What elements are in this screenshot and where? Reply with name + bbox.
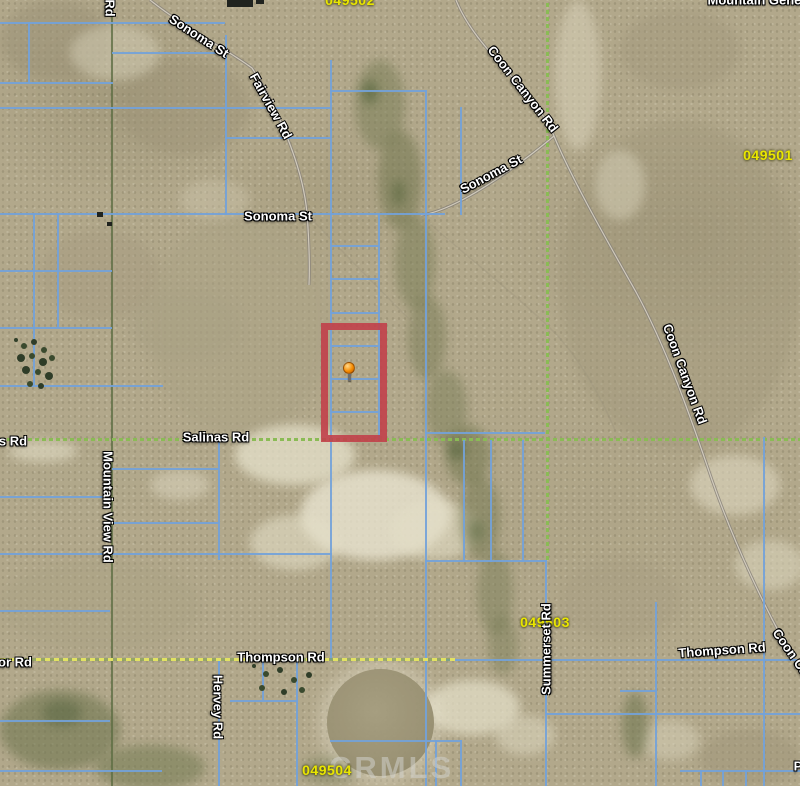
tree-cluster [14,338,18,342]
parcel-line [225,35,227,215]
satellite-parcel-map[interactable]: CRMLS 049502049501049503049504Sonoma StF… [0,0,800,786]
parcel-line [112,468,218,470]
highlighted-parcel-outline[interactable] [321,323,387,442]
building [97,212,103,217]
parcel-line [330,740,462,742]
parcel-line [763,437,765,786]
road-label-thompson-rd-w: Thompson Rd [237,650,324,665]
section-line [546,0,549,560]
parcel-line [680,770,800,772]
road-label-summerset-rd: Summerset Rd [539,603,554,695]
road-fairview [150,0,309,285]
area-label-049501: 049501 [743,147,793,163]
parcel-line [0,385,163,387]
parcel-line [522,440,524,562]
parcel-line [218,440,220,560]
parcel-line [0,82,113,84]
parcel-line [225,137,330,139]
road-label-mountain-gener-partial: Mountain Gener [708,0,800,8]
parcel-line [620,690,657,692]
road-label-sonoma-st-w: Sonoma St [244,209,312,224]
parcel-line [700,770,702,786]
road-label-or-rd-partial: or Rd [0,655,32,670]
parcel-line [330,278,378,280]
parcel-line [0,270,112,272]
dirt-trail [421,216,615,430]
parcel-line [722,770,724,786]
tree-cluster [252,664,256,668]
building [256,0,264,4]
road-label-hervey-rd: Hervey Rd [211,675,226,739]
roaddash-line [0,658,455,661]
olive-line [111,0,113,786]
parcel-line [655,602,657,786]
parcel-line [460,107,462,215]
parcel-line [0,720,110,722]
area-label-049504: 049504 [302,762,352,778]
parcel-line [0,610,110,612]
parcel-line [425,560,547,562]
parcel-line [745,770,747,786]
parcel-line [440,659,800,661]
parcel-line [460,740,462,786]
parcel-line [112,52,225,54]
parcel-line [0,770,162,772]
parcel-line [330,90,427,92]
parcel-line [490,440,492,562]
parcel-line [330,245,378,247]
road-label-salinas-rd: Salinas Rd [183,430,249,445]
parcel-line [463,440,465,562]
parcel-line [262,660,264,700]
parcel-line [33,213,35,385]
road-network [0,0,800,786]
building [107,222,112,226]
parcel-line [112,522,218,524]
road-label-p-partial: P [794,759,800,774]
building [227,0,253,7]
section-line [0,438,800,441]
area-label-049502-partial: 049502 [325,0,375,8]
road-label-rd-partial-top: Rd [103,0,118,17]
parcel-line [0,496,110,498]
parcel-line [545,713,800,715]
parcel-line [28,22,30,82]
parcel-line [230,700,298,702]
parcel-line [0,327,112,329]
road-label-mountain-view-rd: Mountain View Rd [101,451,116,563]
parcel-line [425,432,545,434]
parcel-line [330,312,378,314]
parcel-line [0,553,332,555]
parcel-line [57,213,59,327]
parcel-line [425,90,427,786]
parcel-line [296,660,298,786]
road-label-s-rd-partial: s Rd [0,434,27,449]
marker-head [343,362,355,374]
